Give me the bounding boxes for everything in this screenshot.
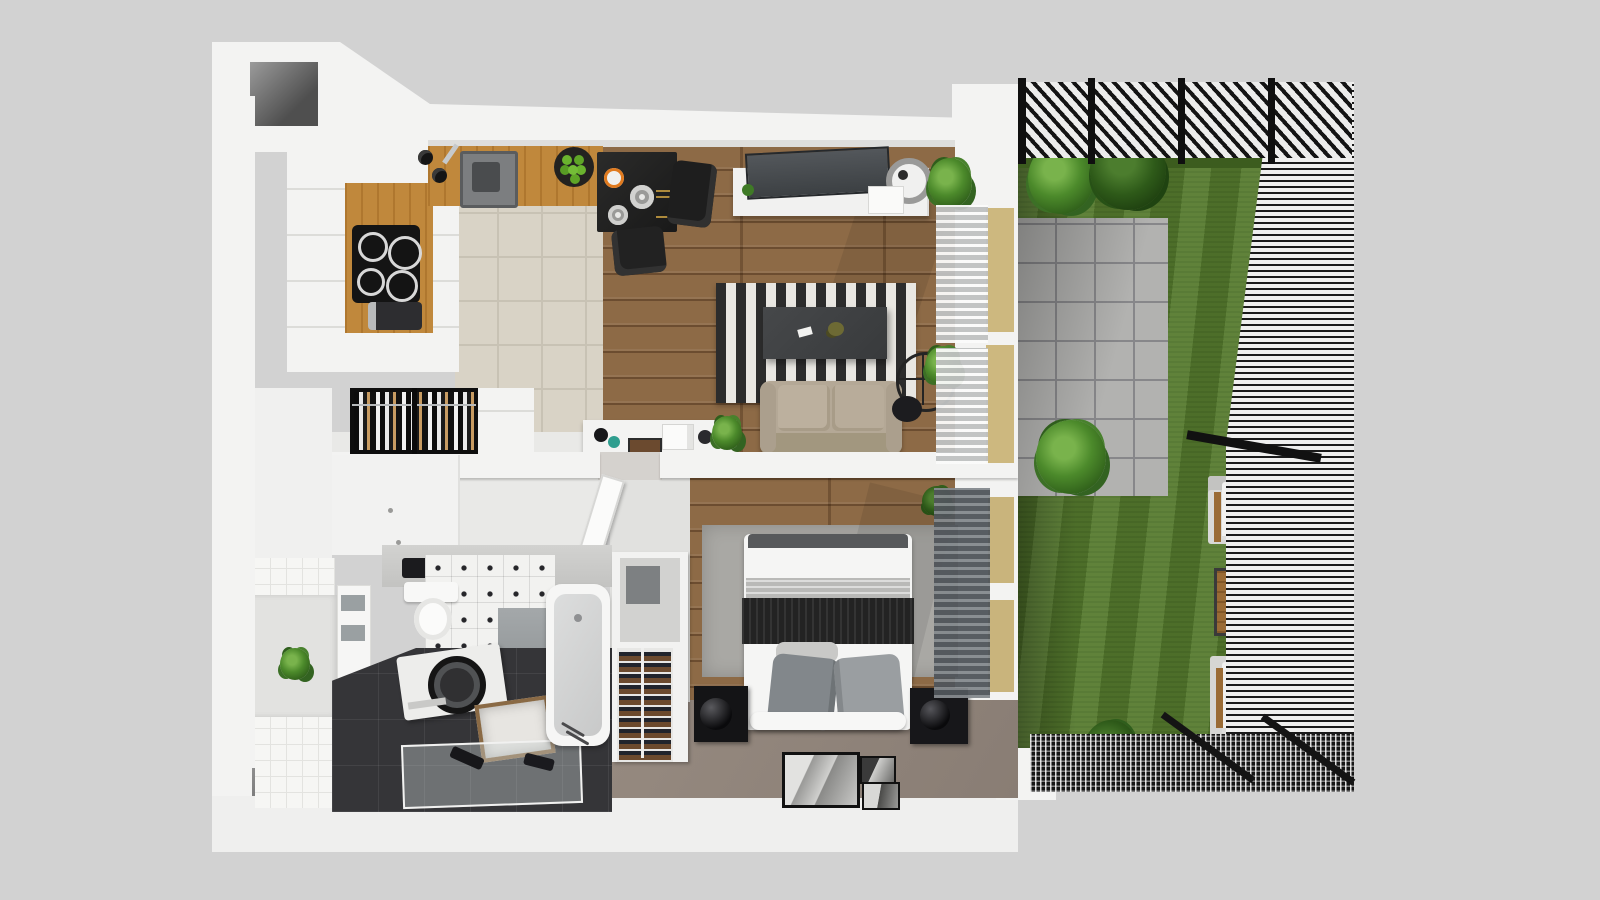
cooktop-burner <box>388 236 422 270</box>
cooktop-burner <box>386 270 418 302</box>
desk-cup-black <box>594 428 608 442</box>
desk-cup-dark <box>698 430 712 444</box>
dinner-plate <box>608 205 628 225</box>
shelf-cabinet-interior <box>626 566 660 604</box>
coffee-machine <box>368 302 422 330</box>
pergola-roof <box>1018 82 1352 158</box>
desk-cup-teal <box>608 436 620 448</box>
towel-stack <box>341 625 365 641</box>
toilet-bowl <box>414 598 452 640</box>
sphere-lamp-left <box>700 698 732 730</box>
fruit-bowl <box>554 147 594 187</box>
floor-lamp-base <box>892 396 922 422</box>
glass-shower-screen <box>401 739 583 809</box>
green-apples <box>562 155 572 165</box>
cutlery-icon <box>656 190 670 192</box>
living-blinds <box>936 205 988 343</box>
bottle-rack <box>617 648 673 762</box>
bathtub-drain <box>574 614 582 622</box>
tv-plant-sprig <box>742 184 754 196</box>
bed-head-band <box>748 534 908 548</box>
left-wall <box>212 96 255 848</box>
floor-lamp-spoke <box>922 353 924 405</box>
pergola-beam <box>1178 78 1185 164</box>
bedroom-blinds <box>934 488 990 698</box>
bottle-rack-divider <box>641 648 644 758</box>
pergola-beam <box>1268 78 1275 164</box>
dining-chair <box>611 225 668 276</box>
bed-black-throw <box>742 598 914 644</box>
window-pane-tan <box>988 600 1014 692</box>
top-wall <box>212 42 1018 152</box>
pergola-beam <box>1018 78 1026 164</box>
sofa-cushion <box>778 385 830 431</box>
window-pane-tan <box>986 345 1014 463</box>
picture-frame-small <box>860 756 896 784</box>
floor-plan-stage <box>0 0 1600 900</box>
desk-coffee-maker <box>662 424 694 450</box>
desk-plant <box>712 416 742 450</box>
sphere-lamp-right <box>920 700 950 730</box>
pergola-beam <box>1088 78 1095 164</box>
garden-tree <box>1036 420 1106 494</box>
niche-plant <box>280 648 310 680</box>
picture-frame-small <box>862 782 900 810</box>
towel-stack <box>341 595 365 611</box>
cooktop-burner <box>358 232 388 262</box>
corner-plant <box>928 158 972 208</box>
round-lamp-center <box>898 170 908 180</box>
top-wall-recess <box>250 62 318 126</box>
pepper-mill <box>432 168 447 183</box>
sofa-armrest <box>760 383 776 453</box>
top-right-corner-block <box>952 84 1018 154</box>
bed-gray-blanket <box>746 578 910 600</box>
cooktop-burner <box>357 268 385 296</box>
chair-wood-arm <box>1216 668 1223 728</box>
dining-chair <box>666 160 717 229</box>
living-blinds <box>936 348 988 464</box>
window-pane-tan <box>988 497 1014 583</box>
wardrobe-divider <box>412 388 417 454</box>
sofa-cushion <box>832 385 884 431</box>
bed-foot-bar <box>750 712 906 730</box>
closet-handle <box>388 508 393 513</box>
chair-wood-arm <box>1214 492 1221 542</box>
orange-fruit-plate <box>604 168 624 188</box>
dinner-plate <box>630 185 654 209</box>
pepper-mill <box>418 150 433 165</box>
coffee-table <box>763 307 887 359</box>
decor-tray <box>868 186 904 214</box>
hall-cabinet <box>478 388 534 456</box>
picture-frame-large <box>782 752 860 808</box>
sink-basin <box>472 162 500 192</box>
table-plant-sprig <box>828 322 844 336</box>
window-pane-tan <box>986 208 1014 332</box>
